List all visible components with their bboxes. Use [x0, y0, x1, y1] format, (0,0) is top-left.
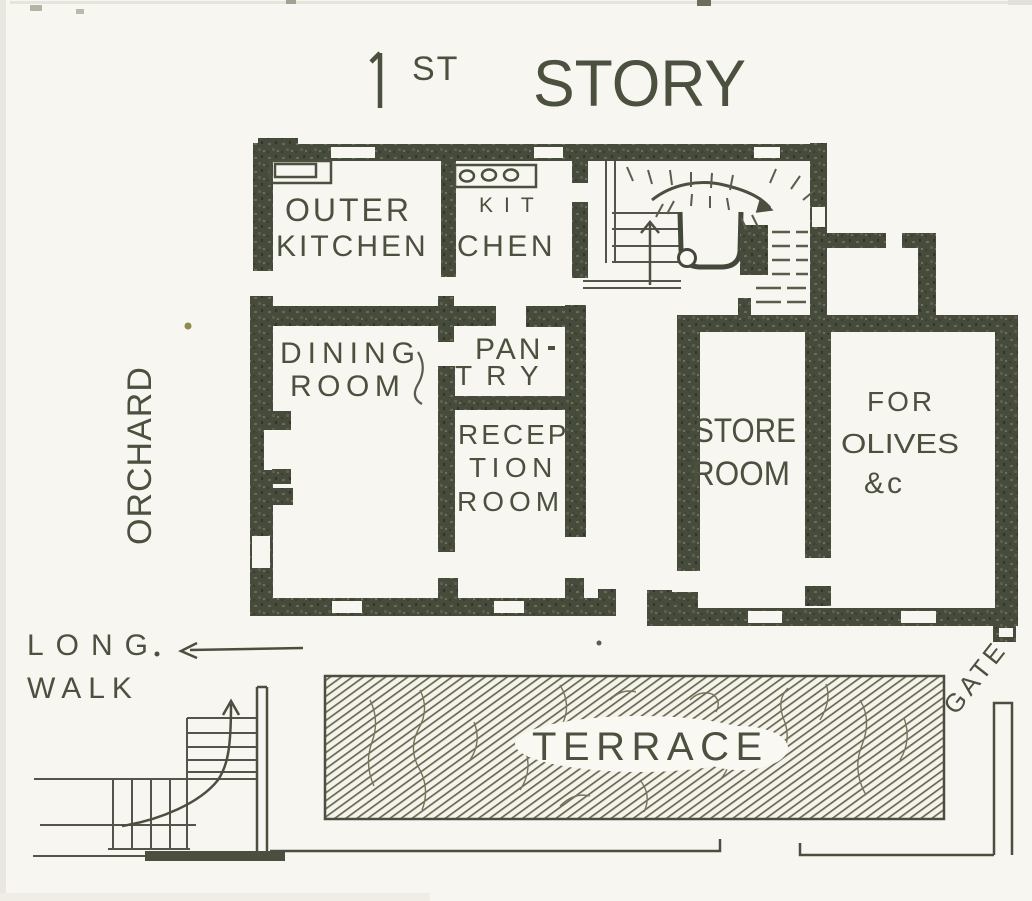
svg-text:DINING: DINING [280, 337, 421, 370]
svg-text:ST: ST [412, 50, 459, 88]
svg-text:ORCHARD: ORCHARD [121, 366, 159, 545]
svg-text:CHEN: CHEN [457, 230, 556, 263]
svg-text:TERRACE: TERRACE [532, 725, 769, 769]
svg-text:TRY: TRY [455, 360, 553, 391]
svg-text:ROOM: ROOM [290, 370, 405, 403]
svg-text:OLIVES: OLIVES [841, 428, 959, 459]
svg-text:KIT: KIT [479, 194, 545, 217]
svg-text:WALK: WALK [27, 672, 139, 705]
svg-text:TION: TION [469, 452, 558, 483]
svg-text:LONG: LONG [27, 629, 160, 662]
svg-text:STORY: STORY [533, 46, 746, 120]
svg-text:ROOM: ROOM [692, 455, 790, 493]
svg-text:KITCHEN: KITCHEN [276, 230, 429, 263]
svg-text:OUTER: OUTER [285, 192, 412, 228]
svg-text:STORE: STORE [694, 412, 796, 450]
svg-text:FOR: FOR [867, 386, 935, 417]
svg-text:&c: &c [864, 467, 905, 500]
svg-text:RECEP-: RECEP- [458, 419, 582, 450]
svg-text:ROOM: ROOM [457, 486, 564, 517]
